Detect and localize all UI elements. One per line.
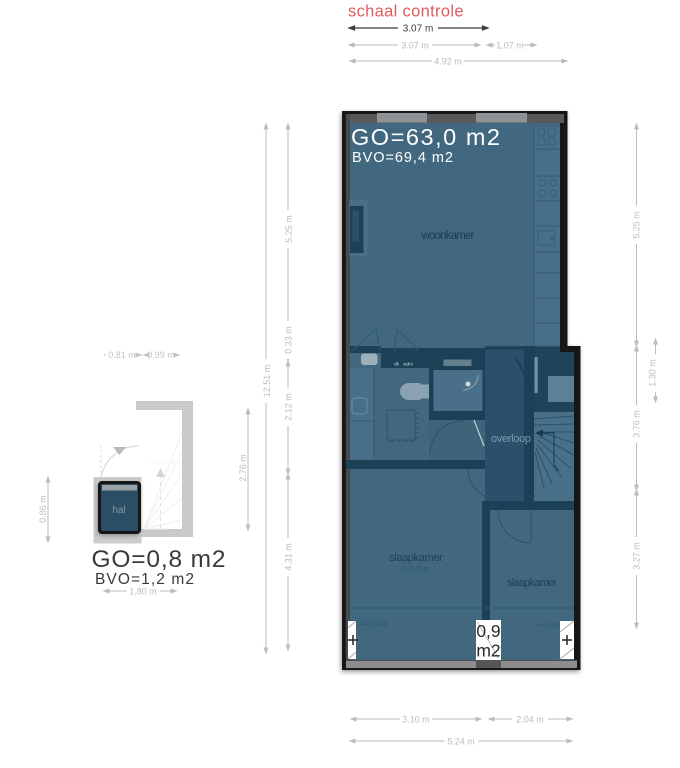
svg-text:1.07 m: 1.07 m	[496, 41, 524, 51]
svg-text:1.80 m: 1.80 m	[129, 587, 157, 597]
svg-text:2.04 m: 2.04 m	[516, 715, 544, 725]
svg-text:3.10 m: 3.10 m	[402, 715, 430, 725]
svg-text:GO=63,0 m2: GO=63,0 m2	[351, 124, 500, 150]
svg-text:2.12 m: 2.12 m	[284, 393, 294, 421]
svg-text:3.76 m: 3.76 m	[632, 410, 642, 438]
svg-text:slaapkamer: slaapkamer	[389, 552, 443, 564]
svg-text:5.24 m: 5.24 m	[447, 737, 475, 747]
svg-text:dk: dk	[394, 362, 400, 368]
svg-text:BVO=1,2 m2: BVO=1,2 m2	[95, 571, 194, 588]
svg-text:5.25 m: 5.25 m	[284, 215, 294, 243]
svg-text:0.33 m: 0.33 m	[284, 326, 294, 354]
svg-text:m2: m2	[476, 641, 500, 661]
svg-text:0,9: 0,9	[476, 621, 500, 641]
svg-text:BVO=69,4 m2: BVO=69,4 m2	[352, 150, 453, 166]
svg-text:slaapkamer: slaapkamer	[507, 577, 557, 589]
svg-text:wdm: wdm	[403, 362, 413, 368]
svg-text:2.76 m: 2.76 m	[238, 454, 248, 482]
svg-text:0.99 m: 0.99 m	[147, 350, 175, 360]
svg-text:4.92 m: 4.92 m	[434, 57, 462, 67]
svg-text:woonkamer: woonkamer	[421, 230, 475, 242]
svg-text:0.86 m: 0.86 m	[38, 495, 48, 523]
svg-text:schaal controle: schaal controle	[348, 3, 464, 21]
svg-text:h=2.81m: h=2.81m	[402, 566, 430, 573]
svg-text:h=1.90m: h=1.90m	[536, 623, 560, 629]
svg-text:3.07 m: 3.07 m	[401, 41, 429, 51]
svg-text:4.31 m: 4.31 m	[284, 543, 294, 571]
svg-text:5.25 m: 5.25 m	[632, 211, 642, 239]
svg-text:h=2.12m: h=2.12m	[360, 621, 388, 628]
svg-text:overloop: overloop	[491, 433, 531, 445]
svg-text:0.81 m: 0.81 m	[108, 350, 136, 360]
svg-text:1.30 m: 1.30 m	[648, 359, 658, 387]
svg-text:3.27 m: 3.27 m	[632, 542, 642, 570]
svg-text:hal: hal	[112, 505, 125, 516]
svg-text:12.51 m: 12.51 m	[262, 365, 272, 398]
svg-text:GO=0,8 m2: GO=0,8 m2	[92, 546, 226, 573]
svg-text:3.07 m: 3.07 m	[403, 24, 434, 35]
